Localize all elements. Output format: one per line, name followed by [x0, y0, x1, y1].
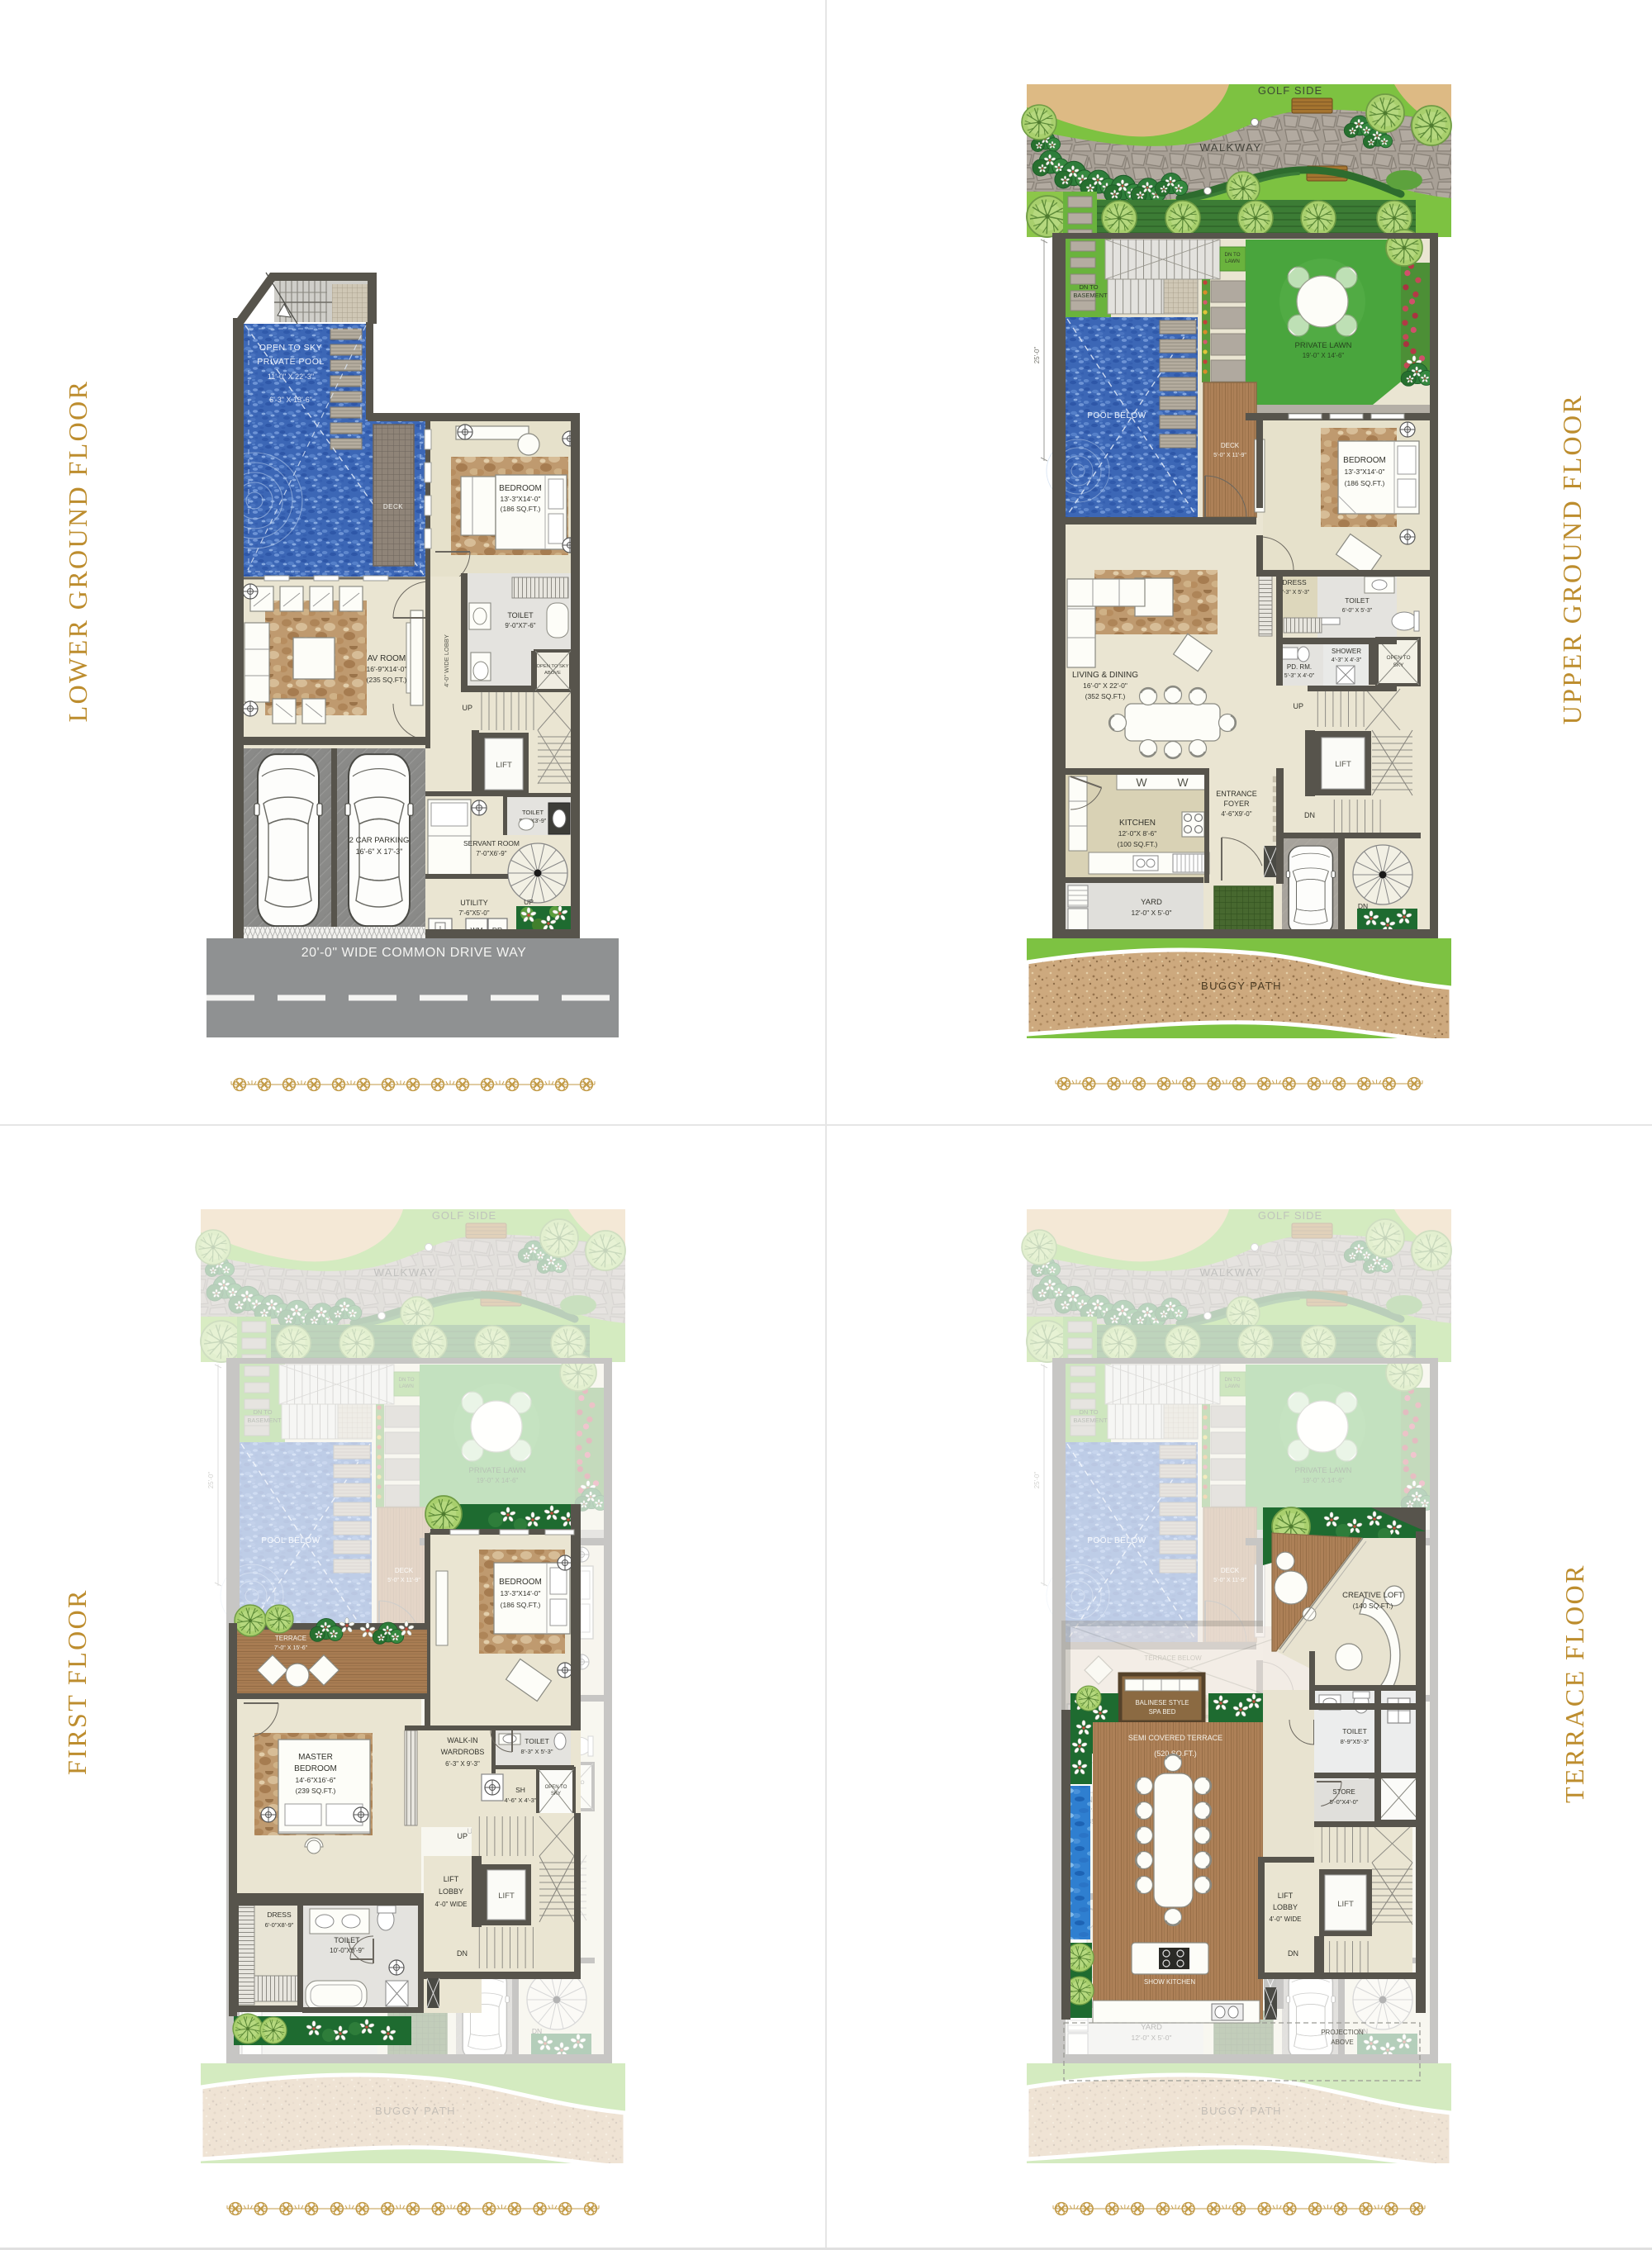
svg-text:BEDROOM: BEDROOM [1343, 456, 1386, 465]
svg-text:(186 SQ.FT.): (186 SQ.FT.) [1345, 479, 1385, 487]
svg-text:BASEMENT: BASEMENT [1073, 292, 1108, 299]
svg-text:POOL BELOW: POOL BELOW [1087, 411, 1146, 420]
svg-text:WALKWAY: WALKWAY [1199, 141, 1261, 154]
svg-text:(352 SQ.FT.): (352 SQ.FT.) [1085, 692, 1126, 700]
svg-text:5'-0" X 11'-9": 5'-0" X 11'-9" [1213, 453, 1246, 458]
svg-text:LIVING & DINING: LIVING & DINING [1072, 671, 1138, 680]
svg-text:SERVANT ROOM: SERVANT ROOM [463, 839, 520, 847]
svg-text:UP: UP [1293, 702, 1303, 710]
svg-text:LIFT: LIFT [1337, 1900, 1354, 1909]
svg-text:10'-0"X8'-9": 10'-0"X8'-9" [330, 1947, 364, 1954]
svg-text:12'-0" X 5'-0": 12'-0" X 5'-0" [1132, 909, 1172, 917]
svg-text:OPEN TO SKY: OPEN TO SKY [259, 343, 322, 353]
svg-text:20'-0" WIDE COMMON DRIVE WAY: 20'-0" WIDE COMMON DRIVE WAY [301, 946, 527, 960]
svg-text:SKY: SKY [1393, 662, 1404, 668]
svg-text:OPEN TO: OPEN TO [545, 1785, 567, 1790]
svg-text:CREATIVE LOFT: CREATIVE LOFT [1342, 1591, 1403, 1600]
svg-text:BEDROOM: BEDROOM [499, 1578, 542, 1587]
svg-text:4'-3" X 4'-3": 4'-3" X 4'-3" [1332, 657, 1362, 663]
svg-text:DN TO: DN TO [1079, 283, 1098, 291]
svg-text:KITCHEN: KITCHEN [1119, 819, 1156, 828]
svg-text:TOILET: TOILET [525, 1737, 549, 1745]
svg-text:4'-0" WIDE: 4'-0" WIDE [434, 1901, 467, 1908]
svg-text:6'-3" X 13'-6": 6'-3" X 13'-6" [269, 396, 312, 404]
svg-text:LIFT: LIFT [444, 1875, 459, 1883]
svg-text:6'-0"X8'-9": 6'-0"X8'-9" [265, 1921, 294, 1929]
svg-text:TOILET: TOILET [1345, 596, 1370, 605]
svg-text:UP: UP [457, 1832, 468, 1840]
svg-text:TERRACE: TERRACE [275, 1635, 306, 1642]
svg-text:16'-9"X14'-0": 16'-9"X14'-0" [367, 665, 407, 673]
svg-text:OPEN TO SKY: OPEN TO SKY [536, 664, 568, 669]
svg-text:DRESS: DRESS [1282, 578, 1307, 586]
svg-text:BUGGY PATH: BUGGY PATH [1201, 980, 1282, 992]
svg-text:5'-3" X 4'-0": 5'-3" X 4'-0" [1284, 673, 1315, 679]
svg-text:25'-0": 25'-0" [1033, 347, 1041, 364]
svg-text:DN: DN [1288, 1949, 1298, 1958]
svg-text:LIFT: LIFT [496, 761, 512, 770]
svg-text:(235 SQ.FT.): (235 SQ.FT.) [367, 676, 407, 684]
svg-text:LIFT: LIFT [1278, 1892, 1294, 1900]
svg-text:14'-6"X16'-6": 14'-6"X16'-6" [296, 1776, 336, 1784]
svg-text:(186 SQ.FT.): (186 SQ.FT.) [501, 505, 541, 513]
svg-text:16'-6" X 17'-3": 16'-6" X 17'-3" [356, 847, 403, 856]
svg-text:LIFT: LIFT [1335, 760, 1351, 769]
svg-text:TOILET: TOILET [1342, 1727, 1367, 1735]
svg-text:LIFT: LIFT [498, 1892, 515, 1901]
svg-text:SHOW KITCHEN: SHOW KITCHEN [1144, 1978, 1195, 1986]
svg-text:LOBBY: LOBBY [439, 1887, 463, 1896]
svg-text:W: W [1177, 776, 1189, 789]
svg-text:SPA BED: SPA BED [1149, 1708, 1176, 1716]
svg-text:5'-3" X 5'-3": 5'-3" X 5'-3" [1279, 590, 1310, 596]
svg-text:7'-0"X6'-9": 7'-0"X6'-9" [476, 850, 506, 857]
svg-text:(140 SQ.FT.): (140 SQ.FT.) [1353, 1602, 1393, 1610]
svg-text:12'-0"X 8'-6": 12'-0"X 8'-6" [1118, 829, 1157, 838]
svg-text:2 CAR PARKING: 2 CAR PARKING [349, 836, 410, 845]
svg-text:W: W [1136, 776, 1147, 789]
svg-text:UP: UP [524, 898, 534, 906]
svg-text:TOILET: TOILET [522, 809, 544, 816]
svg-text:PROJECTION: PROJECTION [1321, 2029, 1364, 2036]
svg-text:OPEN TO: OPEN TO [1386, 655, 1410, 661]
svg-text:13'-3"X14'-0": 13'-3"X14'-0" [501, 1589, 541, 1597]
svg-text:PD. RM.: PD. RM. [1287, 663, 1312, 671]
svg-text:(186 SQ.FT.): (186 SQ.FT.) [501, 1601, 541, 1609]
svg-text:MASTER: MASTER [298, 1753, 333, 1762]
svg-text:AV ROOM: AV ROOM [368, 654, 406, 663]
svg-text:DN: DN [457, 1949, 468, 1958]
svg-text:TERRACE BELOW: TERRACE BELOW [1144, 1654, 1202, 1662]
svg-text:BALINESE STYLE: BALINESE STYLE [1135, 1699, 1189, 1706]
svg-text:11'-0" X 22'-3": 11'-0" X 22'-3" [268, 373, 314, 381]
svg-text:13'-3"X14'-0": 13'-3"X14'-0" [1345, 468, 1385, 476]
svg-text:7'-0" X 15'-6": 7'-0" X 15'-6" [274, 1645, 308, 1651]
svg-text:LAWN: LAWN [1225, 259, 1240, 264]
svg-text:STORE: STORE [1332, 1788, 1355, 1796]
svg-text:(100 SQ.FT.): (100 SQ.FT.) [1118, 840, 1158, 848]
svg-text:UP: UP [462, 704, 472, 712]
svg-text:8'-9"X5'-3": 8'-9"X5'-3" [1341, 1738, 1370, 1745]
svg-text:DN: DN [1304, 811, 1315, 819]
svg-text:DRESS: DRESS [267, 1911, 292, 1919]
svg-text:13'-3"X14'-0": 13'-3"X14'-0" [501, 495, 541, 503]
svg-text:SKY: SKY [551, 1792, 561, 1797]
svg-text:7'-6"X5'-0": 7'-6"X5'-0" [458, 909, 489, 917]
svg-text:4'-6"X9'-0": 4'-6"X9'-0" [1221, 810, 1251, 818]
svg-text:ABOVE: ABOVE [544, 671, 561, 676]
svg-text:GOLF SIDE: GOLF SIDE [1258, 84, 1322, 97]
svg-text:DN TO: DN TO [1224, 252, 1240, 258]
svg-text:ABOVE: ABOVE [1331, 2039, 1354, 2046]
svg-text:WALK-IN: WALK-IN [447, 1736, 477, 1744]
svg-text:BEDROOM: BEDROOM [499, 484, 542, 493]
svg-text:SH: SH [515, 1786, 525, 1794]
svg-text:SHOWER: SHOWER [1332, 648, 1361, 655]
svg-text:(239 SQ.FT.): (239 SQ.FT.) [296, 1787, 336, 1795]
svg-text:19'-0" X 14'-6": 19'-0" X 14'-6" [1303, 352, 1345, 359]
svg-text:SEMI COVERED TERRACE: SEMI COVERED TERRACE [1128, 1734, 1222, 1742]
svg-text:16'-0" X 22'-0": 16'-0" X 22'-0" [1083, 681, 1127, 690]
svg-text:PRIVATE POOL: PRIVATE POOL [257, 357, 324, 367]
svg-text:6'-3" X 9'-3": 6'-3" X 9'-3" [445, 1760, 480, 1768]
svg-text:UTILITY: UTILITY [460, 899, 488, 907]
svg-text:4'-6" X 4'-3": 4'-6" X 4'-3" [504, 1797, 536, 1804]
svg-text:9'-0"X7'-6": 9'-0"X7'-6" [505, 622, 535, 629]
svg-text:6'-0" X 5'-3": 6'-0" X 5'-3" [1342, 608, 1373, 614]
svg-text:DECK: DECK [383, 503, 403, 510]
svg-text:LOBBY: LOBBY [1273, 1903, 1298, 1911]
svg-text:TOILET: TOILET [507, 611, 534, 619]
svg-text:WARDROBS: WARDROBS [441, 1748, 485, 1756]
svg-text:8'-3" X 5'-3": 8'-3" X 5'-3" [520, 1748, 553, 1755]
svg-text:BEDROOM: BEDROOM [294, 1764, 337, 1773]
svg-text:4'-0" WIDE LOBBY: 4'-0" WIDE LOBBY [443, 634, 450, 687]
svg-text:DECK: DECK [1221, 442, 1240, 449]
svg-text:ENTRANCE: ENTRANCE [1216, 790, 1257, 798]
svg-text:YARD: YARD [1141, 898, 1162, 907]
svg-text:4'-0" WIDE: 4'-0" WIDE [1269, 1915, 1301, 1923]
svg-text:PRIVATE LAWN: PRIVATE LAWN [1295, 341, 1352, 350]
svg-text:FOYER: FOYER [1223, 800, 1250, 808]
